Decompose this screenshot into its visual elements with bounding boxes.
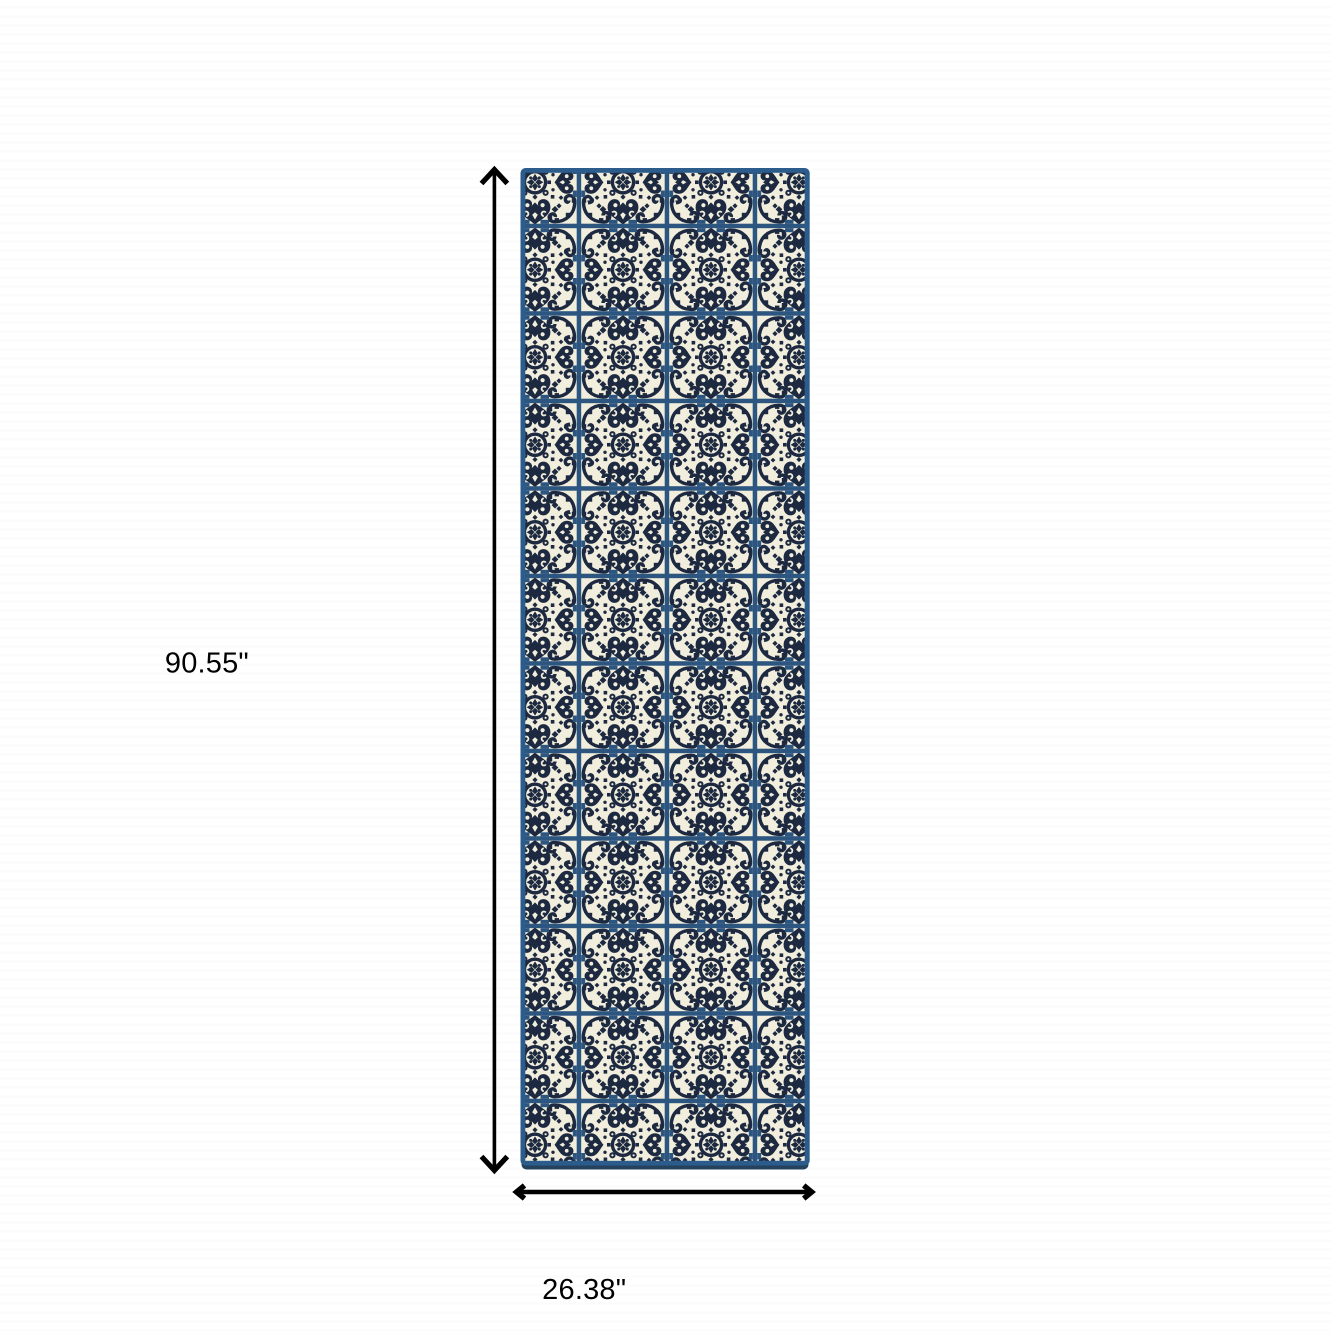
- svg-text:26.38": 26.38": [542, 1274, 626, 1306]
- svg-text:90.55": 90.55": [165, 648, 249, 680]
